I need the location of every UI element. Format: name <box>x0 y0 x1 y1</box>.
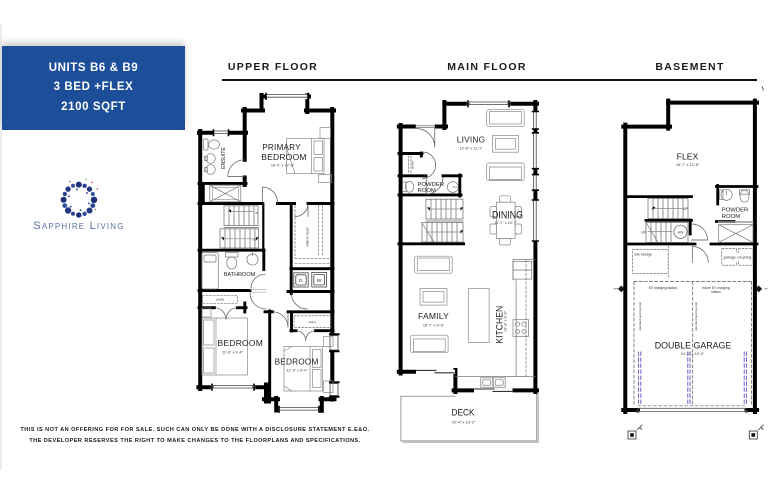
svg-text:POWDER: POWDER <box>418 182 445 188</box>
svg-text:BATHROOM: BATHROOM <box>224 272 256 278</box>
svg-text:standard parking stall: standard parking stall <box>694 302 698 331</box>
svg-text:LIVING: LIVING <box>457 134 486 144</box>
svg-text:16'-0" x 12'-8": 16'-0" x 12'-8" <box>271 163 295 167</box>
svg-text:station: station <box>711 290 721 294</box>
svg-text:ROOM: ROOM <box>722 214 740 220</box>
svg-text:garbage / recycling: garbage / recycling <box>723 256 751 260</box>
svg-text:DINING: DINING <box>492 210 523 222</box>
svg-text:ROOM: ROOM <box>418 188 436 194</box>
svg-text:closet: closet <box>308 320 316 324</box>
svg-text:walk-in closet: walk-in closet <box>306 227 310 246</box>
svg-text:12'-8" x 11'-1": 12'-8" x 11'-1" <box>459 147 483 151</box>
svg-text:DOUBLE GARAGE: DOUBLE GARAGE <box>655 341 732 351</box>
svg-text:DECK: DECK <box>452 408 475 418</box>
svg-text:20'-4" x 10'-2": 20'-4" x 10'-2" <box>452 421 476 425</box>
svg-text:BEDROOM: BEDROOM <box>275 356 319 366</box>
svg-text:tote storage: tote storage <box>635 253 653 257</box>
svg-text:D: D <box>299 278 303 283</box>
svg-text:11'-0" x 9'-4": 11'-0" x 9'-4" <box>222 351 244 355</box>
svg-text:FAMILY: FAMILY <box>418 311 449 321</box>
svg-text:24'-1" x 19'-0": 24'-1" x 19'-0" <box>681 352 705 356</box>
svg-text:FLEX: FLEX <box>677 151 699 161</box>
svg-text:POWDER: POWDER <box>722 208 749 214</box>
svg-text:LINEN: LINEN <box>216 298 224 302</box>
svg-text:HW: HW <box>678 230 684 234</box>
svg-text:19'-3" x 9'-9": 19'-3" x 9'-9" <box>503 310 507 332</box>
svg-text:PRIMARY: PRIMARY <box>262 142 301 152</box>
svg-text:18'-7" x 12'-8": 18'-7" x 12'-8" <box>676 163 700 167</box>
svg-text:11'-3" x 9'-4": 11'-3" x 9'-4" <box>287 369 309 373</box>
svg-text:up: up <box>253 238 257 242</box>
svg-text:up: up <box>255 210 259 214</box>
svg-text:ENSUITE: ENSUITE <box>221 147 227 169</box>
svg-text:EV charging station: EV charging station <box>649 286 678 290</box>
svg-text:closet: closet <box>411 161 415 169</box>
svg-text:W: W <box>317 278 322 283</box>
svg-text:standard parking stall: standard parking stall <box>638 302 642 331</box>
svg-text:11'-7" x 10'-7": 11'-7" x 10'-7" <box>494 221 518 225</box>
svg-text:UP: UP <box>641 231 646 235</box>
svg-text:BEDROOM: BEDROOM <box>261 152 307 162</box>
svg-text:UP: UP <box>683 207 688 211</box>
svg-text:BEDROOM: BEDROOM <box>218 338 264 348</box>
svg-text:16'-7" x 9'-6": 16'-7" x 9'-6" <box>423 324 445 328</box>
